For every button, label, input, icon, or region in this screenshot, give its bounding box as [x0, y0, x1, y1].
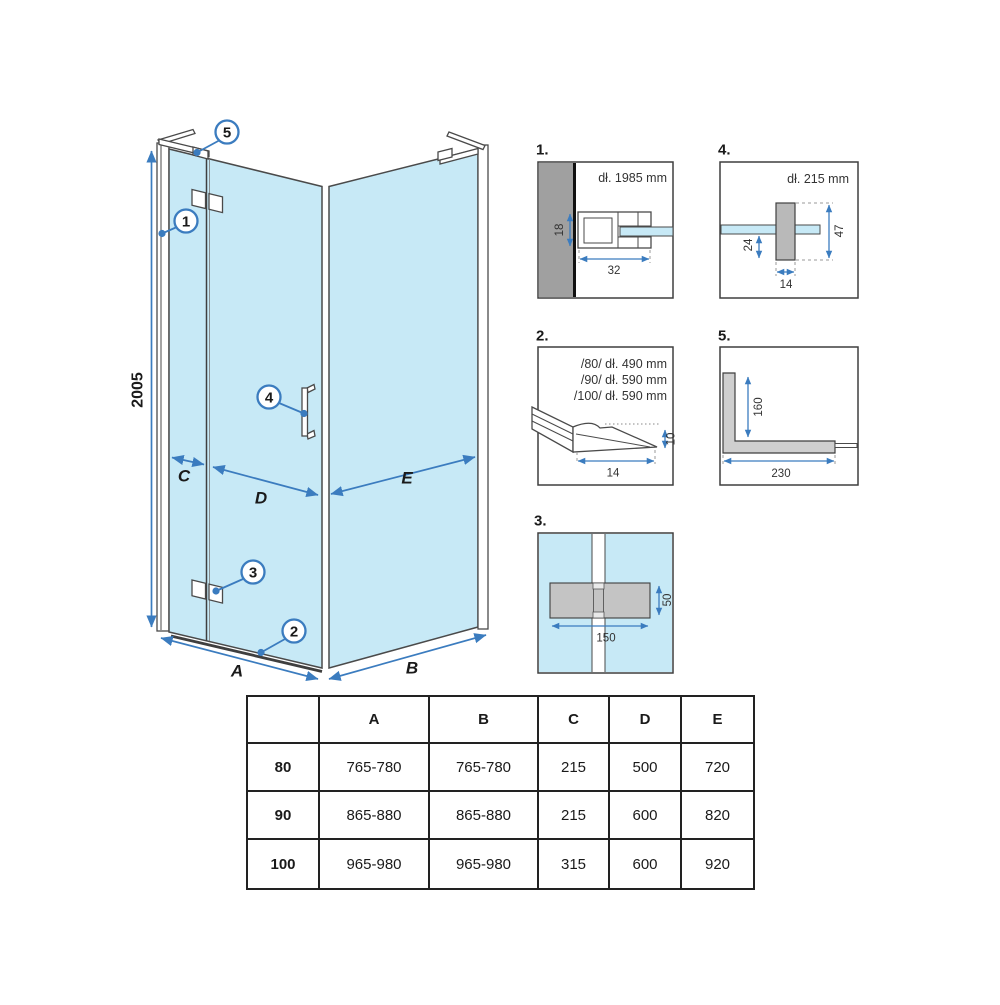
cell-90-D: 600	[609, 791, 681, 839]
detail-5-label: 5.	[718, 328, 731, 345]
callout-3-number: 3	[249, 564, 257, 581]
glass-edge	[620, 227, 673, 236]
cell-90-C: 215	[538, 791, 609, 839]
detail-4-length-note: dł. 215 mm	[787, 172, 849, 186]
table-header-A: A	[319, 696, 429, 743]
detail-1-dim-32-label: 32	[608, 265, 621, 277]
glass-panel-right	[329, 149, 478, 668]
cell-100-E: 920	[681, 839, 754, 889]
glass-edge	[721, 225, 820, 234]
wall-profile-right	[478, 145, 488, 629]
callout-2-number: 2	[290, 623, 298, 640]
dimension-B-label: B	[406, 659, 418, 678]
detail-2-dim-14-label: 14	[607, 468, 620, 480]
detail-4-label: 4.	[718, 142, 731, 159]
detail-1-dim-18-label: 18	[554, 224, 566, 237]
cell-100-C: 315	[538, 839, 609, 889]
detail-1-wall-profile: 1. dł. 1985 mm 18 32	[536, 142, 673, 299]
callout-1-number: 1	[182, 213, 190, 230]
detail-1-length-note: dł. 1985 mm	[598, 171, 667, 185]
dimension-C-label: C	[178, 467, 191, 486]
table-header-B: B	[429, 696, 538, 743]
table-header-D: D	[609, 696, 681, 743]
detail-2-note-90: /90/ dł. 590 mm	[581, 373, 667, 387]
glass-edge-line	[835, 444, 857, 448]
cell-80-A: 765-780	[319, 743, 429, 791]
detail-2-bottom-seal: 2. /80/ dł. 490 mm /90/ dł. 590 mm /100/…	[532, 328, 678, 486]
wall-edge-line	[573, 163, 576, 297]
table-header-E: E	[681, 696, 754, 743]
table-row-80: 80 765-780 765-780 215 500 720	[247, 743, 754, 791]
cell-80-C: 215	[538, 743, 609, 791]
detail-5-dim-160-label: 160	[753, 397, 765, 416]
detail-5-support-bar: 5. 160 230	[718, 328, 858, 486]
detail-2-dim-10-label: 10	[666, 433, 678, 446]
cell-80-D: 500	[609, 743, 681, 791]
table-row-100: 100 965-980 965-980 315 600 920	[247, 839, 754, 889]
row-label: 90	[247, 791, 319, 839]
detail-4-dim-14-label: 14	[780, 279, 793, 291]
detail-4-dim-47-label: 47	[834, 225, 846, 238]
cell-100-D: 600	[609, 839, 681, 889]
cell-100-A: 965-980	[319, 839, 429, 889]
detail-2-dim-10: 10	[665, 430, 678, 448]
table-header-C: C	[538, 696, 609, 743]
cell-90-B: 865-880	[429, 791, 538, 839]
callout-5-number: 5	[223, 124, 231, 141]
dimension-E-label: E	[401, 469, 413, 488]
bar-section	[776, 203, 795, 260]
table-corner-cell	[247, 696, 319, 743]
callout-5: 5	[193, 121, 238, 157]
table-header-row: A B C D E	[247, 696, 754, 743]
detail-4-top-bar: 4. dł. 215 mm 47 24 14	[718, 142, 858, 299]
detail-2-note-100: /100/ dł. 590 mm	[574, 389, 667, 403]
detail-2-label: 2.	[536, 328, 549, 345]
callout-4-number: 4	[265, 389, 274, 406]
hinge-plate-front	[550, 583, 650, 618]
cell-80-E: 720	[681, 743, 754, 791]
height-dimension: 2005	[130, 151, 152, 627]
shower-enclosure-technical-drawing: 2005	[0, 0, 1000, 1000]
row-label: 100	[247, 839, 319, 889]
detail-5-dim-230-label: 230	[771, 468, 790, 480]
detail-3-dim-150-label: 150	[596, 633, 615, 645]
cell-90-A: 865-880	[319, 791, 429, 839]
dimension-table: A B C D E 80 765-780 765-780 215 500 720…	[246, 695, 755, 890]
detail-4-dim-24-label: 24	[743, 238, 755, 251]
dimension-D-label: D	[255, 489, 267, 508]
detail-2-note-80: /80/ dł. 490 mm	[581, 357, 667, 371]
detail-3-hinge: 3. 50 150	[534, 513, 674, 674]
detail-3-dim-50-label: 50	[662, 594, 674, 607]
wall-profile-left	[157, 143, 169, 631]
cell-100-B: 965-980	[429, 839, 538, 889]
main-isometric-view: 2005	[130, 121, 489, 681]
table-row-90: 90 865-880 865-880 215 600 820	[247, 791, 754, 839]
row-label: 80	[247, 743, 319, 791]
height-dimension-label: 2005	[130, 372, 147, 408]
detail-1-label: 1.	[536, 142, 549, 159]
detail-3-label: 3.	[534, 513, 547, 530]
cell-90-E: 820	[681, 791, 754, 839]
dimension-A-label: A	[230, 662, 243, 681]
cell-80-B: 765-780	[429, 743, 538, 791]
